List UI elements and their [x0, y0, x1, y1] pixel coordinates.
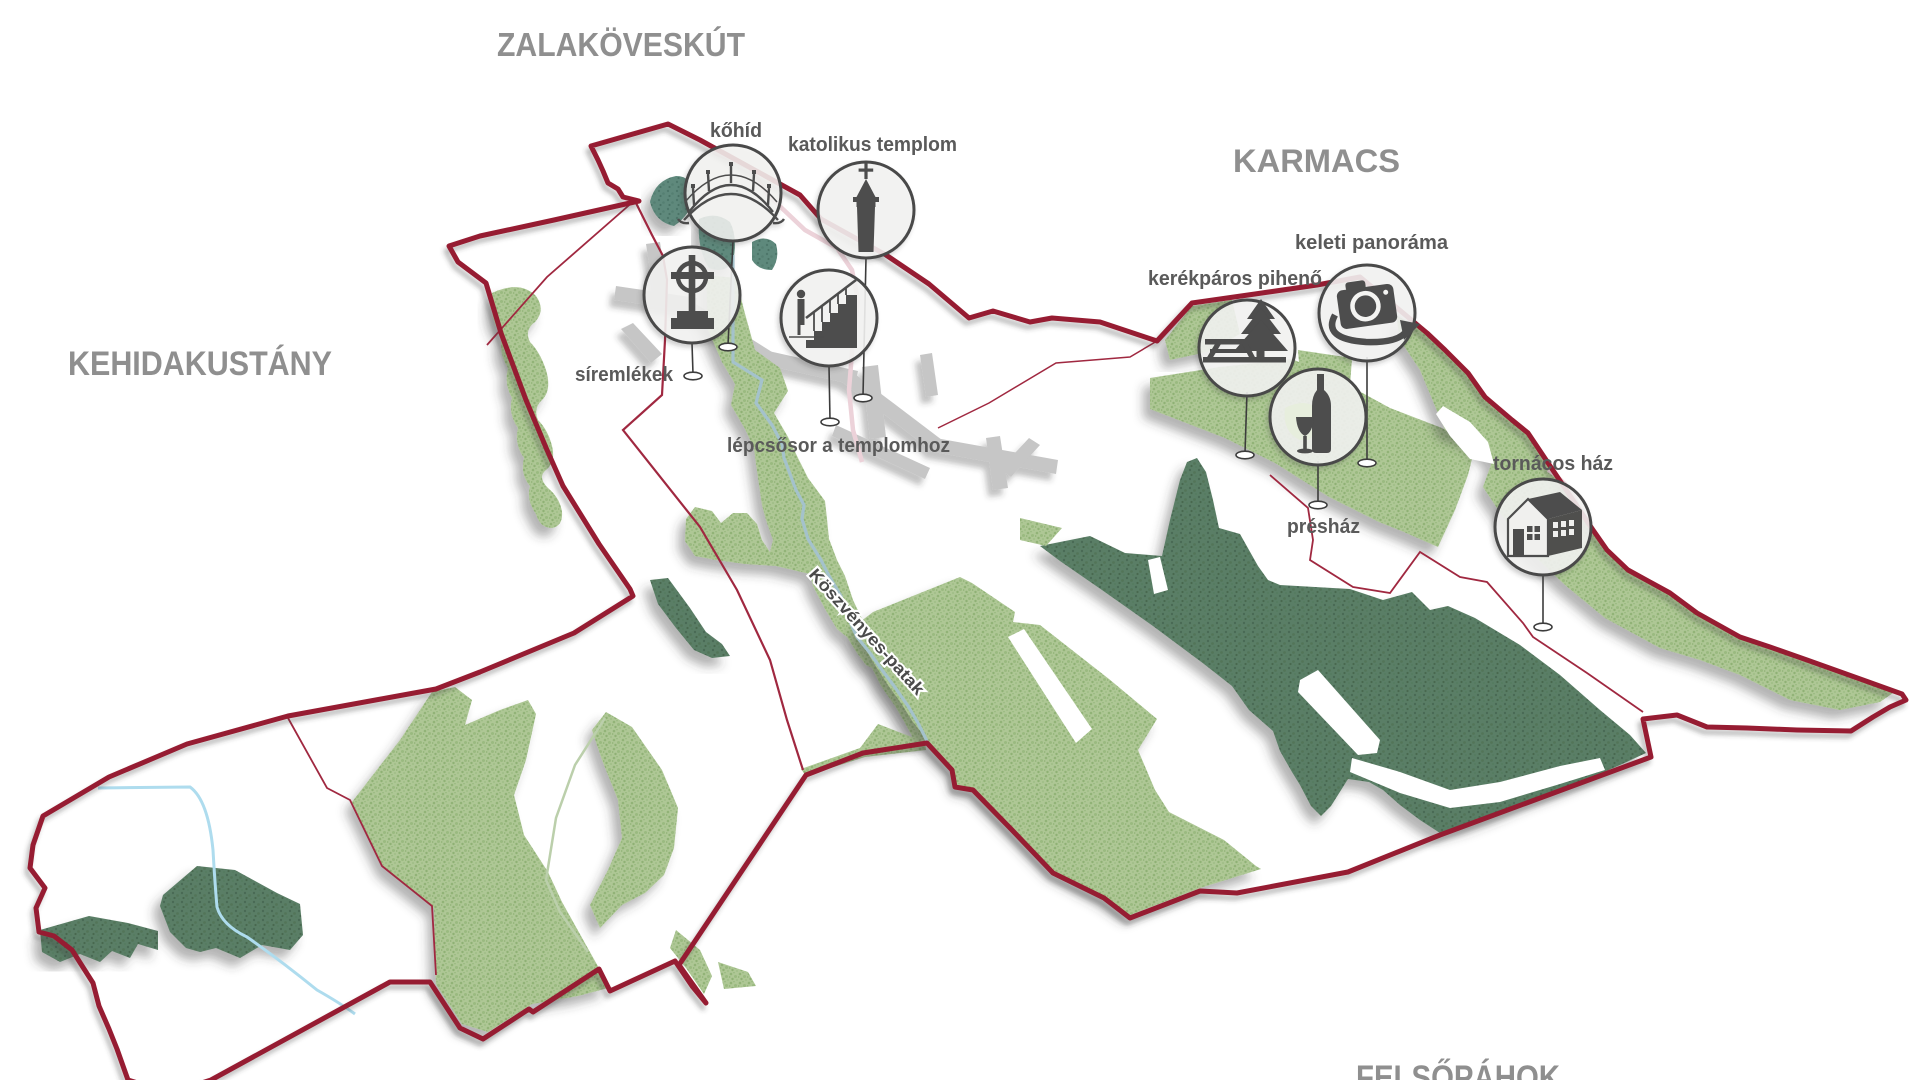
svg-text:KEHIDAKUSTÁNY: KEHIDAKUSTÁNY	[68, 345, 332, 383]
svg-text:KARMACS: KARMACS	[1233, 143, 1400, 179]
svg-text:kőhíd: kőhíd	[710, 120, 762, 142]
svg-text:lépcsősor a templomhoz: lépcsősor a templomhoz	[727, 435, 950, 457]
svg-text:ZALAKÖVESKÚT: ZALAKÖVESKÚT	[497, 26, 745, 63]
svg-text:keleti panoráma: keleti panoráma	[1295, 232, 1449, 254]
svg-text:tornácos ház: tornácos ház	[1493, 453, 1613, 475]
svg-text:síremlékek: síremlékek	[575, 364, 674, 386]
svg-text:katolikus templom: katolikus templom	[788, 134, 957, 156]
svg-text:FELSŐPÁHOK: FELSŐPÁHOK	[1356, 1059, 1560, 1080]
svg-text:présház: présház	[1287, 516, 1360, 538]
svg-text:kerékpáros pihenő: kerékpáros pihenő	[1148, 268, 1322, 290]
